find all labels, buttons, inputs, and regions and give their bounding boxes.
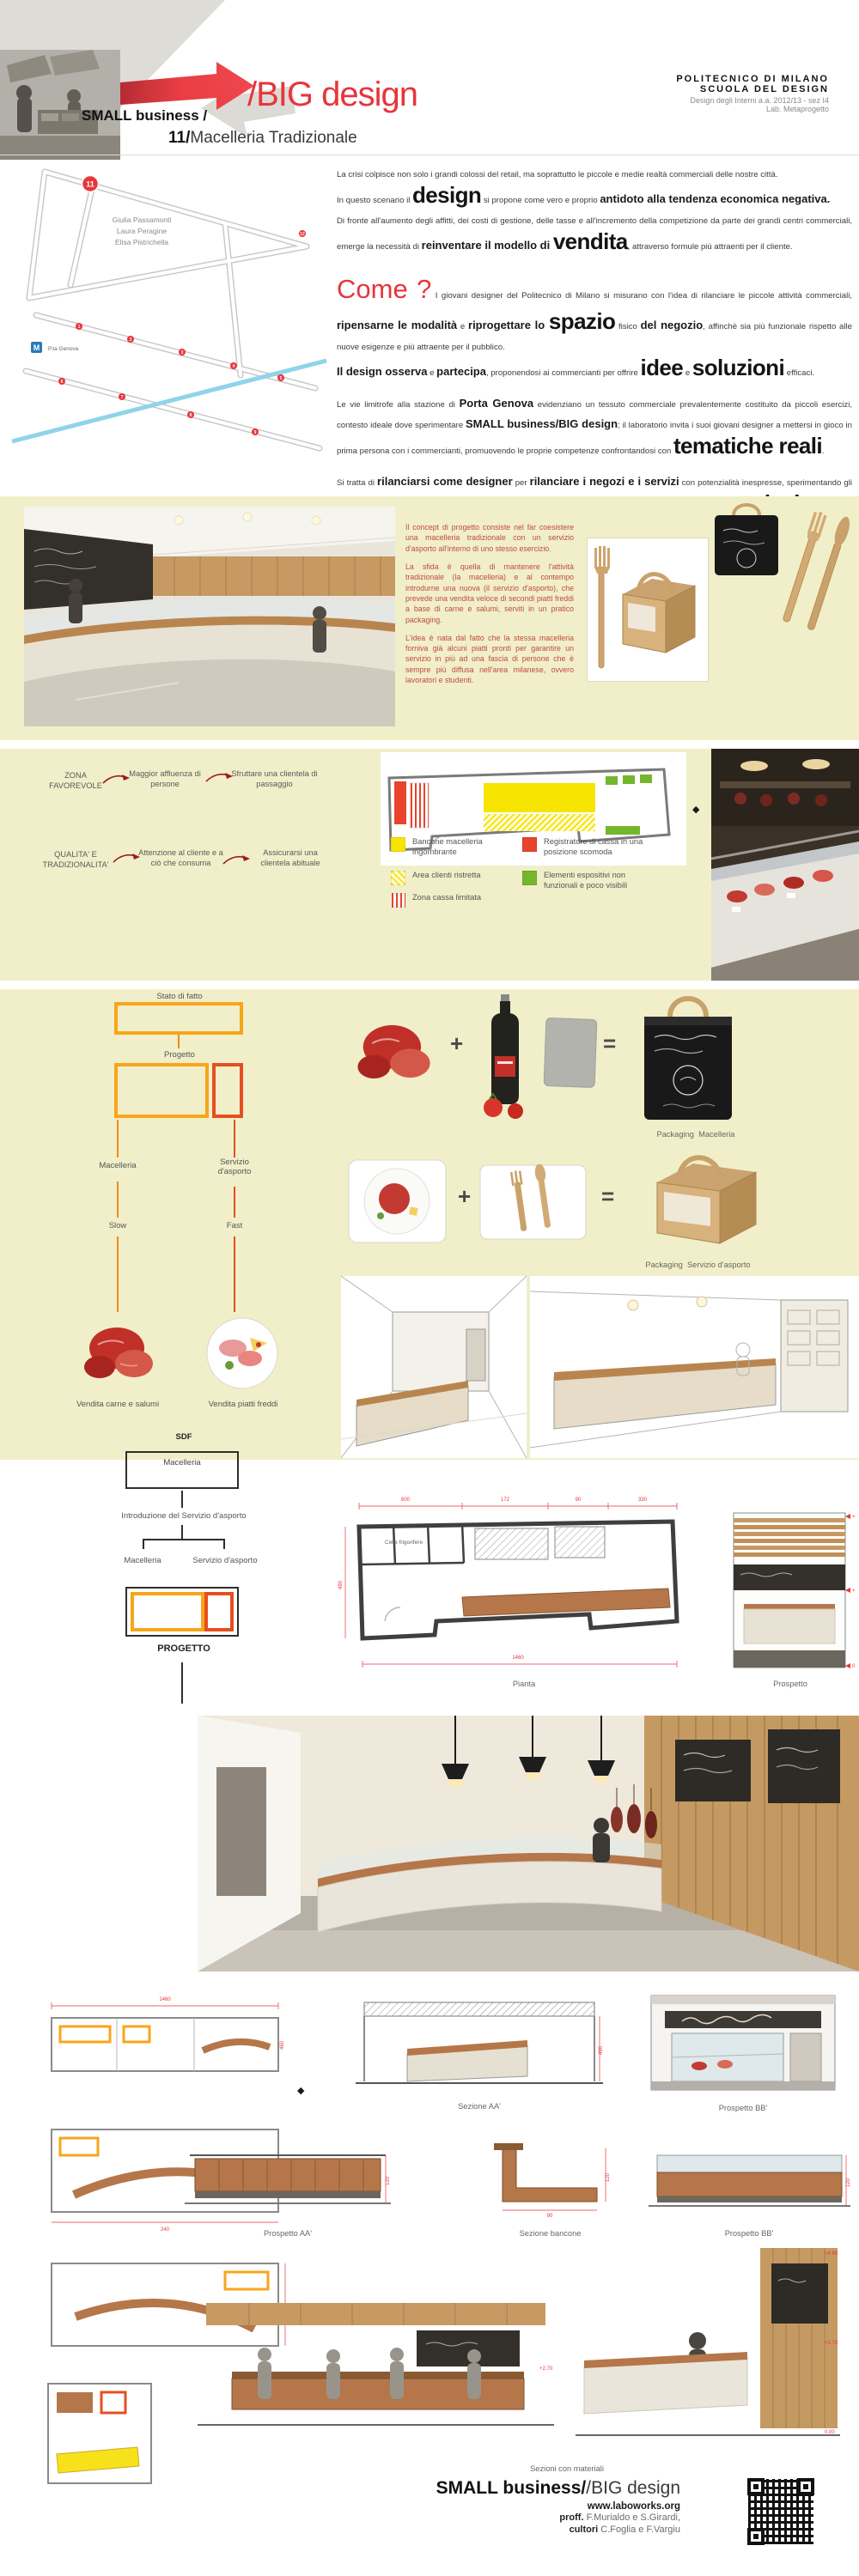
connector xyxy=(178,1035,180,1048)
svg-text:172: 172 xyxy=(501,1498,510,1503)
brand-big: /BIG design xyxy=(247,76,417,114)
footer-site: www.laboworks.org xyxy=(344,2501,680,2512)
blackboard-band xyxy=(734,1564,845,1590)
svg-text:M: M xyxy=(34,343,40,352)
concept-text: Il concept di progetto consiste nel far … xyxy=(405,522,574,693)
slow-label: Slow xyxy=(92,1221,143,1230)
flow2-node-a: QUALITA' E TRADIZIONALITA' xyxy=(33,850,119,870)
author: Laura Peragine xyxy=(94,226,189,237)
course-line2: Lab. Metaprogetto xyxy=(567,105,829,113)
prospetto-bb-storefront xyxy=(639,1989,847,2097)
connector xyxy=(117,1182,119,1218)
svg-text:90: 90 xyxy=(576,1498,582,1503)
svg-text:8: 8 xyxy=(190,413,192,418)
svg-text:2: 2 xyxy=(130,337,132,343)
svg-text:6: 6 xyxy=(61,380,64,385)
author: Giulia Passamonti xyxy=(94,215,189,226)
svg-text:600: 600 xyxy=(401,1498,411,1503)
connector xyxy=(143,1539,225,1540)
svg-text:3: 3 xyxy=(181,350,184,355)
state-label: Stato di fatto xyxy=(124,992,235,1001)
svg-text:+4.90: +4.90 xyxy=(825,2251,838,2257)
caption-vendita-carne: Vendita carne e salumi xyxy=(70,1400,165,1409)
connector xyxy=(117,1236,119,1312)
marker-11: 11 xyxy=(82,176,99,192)
canal-line xyxy=(12,361,326,441)
sezioni-materiali-caption: Sezioni con materiali xyxy=(498,2464,636,2473)
project-label: Progetto xyxy=(124,1050,235,1060)
prospetto-drawing: +4.90 +2.20 0.00 xyxy=(727,1504,856,1676)
prospetto-caption: Prospetto xyxy=(747,1680,833,1688)
sdf-branch-right: Servizio d'asporto xyxy=(186,1556,265,1565)
prospetto-aa-drawing: 120 xyxy=(185,2133,391,2219)
svg-text:120: 120 xyxy=(386,2176,391,2185)
flow1-node-b: Maggior affluenza di persone xyxy=(126,769,204,789)
svg-text:0.00: 0.00 xyxy=(825,2430,835,2435)
doorway xyxy=(216,1767,266,1896)
person-silhouette xyxy=(593,1818,610,1862)
svg-text:1460: 1460 xyxy=(512,1656,524,1661)
connector xyxy=(234,1187,235,1218)
project-render-1 xyxy=(341,1276,527,1458)
connector xyxy=(223,1539,225,1549)
brand-small: SMALL business / xyxy=(82,107,207,125)
concept-paragraph: La sfida è quella di mantenere l'attivit… xyxy=(405,562,574,625)
flow1-node-c: Sfruttare una clientela di passaggio xyxy=(225,769,324,789)
svg-text:9: 9 xyxy=(254,430,257,435)
qr-finder xyxy=(747,2478,765,2495)
intro-text: La crisi colpisce non solo i grandi colo… xyxy=(337,163,852,550)
header-divider xyxy=(0,155,859,155)
svg-text:460: 460 xyxy=(280,2040,285,2050)
svg-text:7: 7 xyxy=(121,395,124,400)
project-rect-macelleria xyxy=(114,1063,209,1118)
cold-plate-figure xyxy=(200,1315,284,1391)
celle-label: Celle frigorifere xyxy=(385,1540,423,1546)
qr-finder xyxy=(797,2478,814,2495)
menu-blackboard xyxy=(675,1740,751,1801)
svg-text:11: 11 xyxy=(86,180,94,189)
project-title-line: 11/Macelleria Tradizionale xyxy=(168,129,357,148)
sezione-bancone-drawing: 90 120 xyxy=(477,2133,623,2219)
flow1-node-a: ZONA FAVOREVOLE xyxy=(41,771,110,791)
footer-cultori: cultori C.Foglia e F.Vargiu xyxy=(344,2524,680,2536)
black-bag-figure xyxy=(710,496,783,579)
flow2-node-b: Attenzione al cliente e a ciò che consum… xyxy=(136,848,226,868)
project-number: 11/ xyxy=(168,129,190,147)
legend-item: Zona cassa limitata xyxy=(391,893,481,908)
concept-paragraph: Il concept di progetto consiste nel far … xyxy=(405,522,574,554)
legend-swatch-red-stripe xyxy=(391,893,405,908)
course-line1: Design degli Interni a.a. 2012/13 - sez … xyxy=(567,96,829,105)
legend-swatch-yellow xyxy=(391,837,405,852)
svg-text:12: 12 xyxy=(300,232,305,237)
branch-macelleria: Macelleria xyxy=(75,1161,161,1170)
plus-glyph: + xyxy=(458,1183,471,1210)
sdf-orange-rect xyxy=(131,1592,204,1631)
svg-text:330: 330 xyxy=(638,1498,648,1503)
diamond-marker: ◆ xyxy=(297,2085,304,2096)
packaging-caption-2: Packaging Servizio d'asporto xyxy=(627,1261,769,1269)
shop-sign xyxy=(665,2011,821,2028)
connector xyxy=(234,1120,235,1157)
tartare-plate-figure xyxy=(348,1159,447,1243)
intro-paragraph: La crisi colpisce non solo i grandi colo… xyxy=(337,163,852,256)
prospetto-bb-caption: Prospetto BB' xyxy=(691,2104,795,2112)
material-section-1: +2.70 xyxy=(198,2281,554,2452)
wood-wall xyxy=(153,556,395,596)
svg-text:90: 90 xyxy=(547,2214,553,2219)
registratore xyxy=(394,781,406,824)
project-rect-asporto xyxy=(212,1063,243,1118)
project-render-2 xyxy=(530,1276,859,1458)
person-silhouette xyxy=(313,606,326,653)
raw-meat-figure xyxy=(77,1315,159,1391)
footer-professors: proff. F.Murialdo e S.Girardi, xyxy=(344,2512,680,2524)
sezione-aa-caption: Sezione AA' xyxy=(428,2102,531,2111)
sezione-bancone-caption: Sezione bancone xyxy=(497,2229,604,2238)
footer-credits: SMALL business//BIG design www.laboworks… xyxy=(344,2478,680,2537)
caption-vendita-piatti: Vendita piatti freddi xyxy=(196,1400,290,1409)
sdf-red-rect xyxy=(204,1592,234,1631)
svg-text:1460: 1460 xyxy=(159,1997,171,2002)
school-line2: SCUOLA DEL DESIGN xyxy=(567,84,829,94)
market-photo xyxy=(0,50,120,160)
svg-text:5: 5 xyxy=(280,376,283,381)
legend-item: Area clienti ristretta xyxy=(391,871,481,885)
plus-glyph: + xyxy=(450,1030,463,1057)
svg-text:120: 120 xyxy=(606,2172,611,2182)
fork-and-box-figure xyxy=(587,538,707,680)
material-section-2: +4.90 +2.70 0.00 xyxy=(567,2238,849,2454)
connector xyxy=(234,1236,235,1312)
interior-render-photo xyxy=(24,507,395,726)
bancone xyxy=(484,783,595,812)
legend-item: Registratore di cassa in una posizione s… xyxy=(522,837,673,857)
project-title: Macelleria Tradizionale xyxy=(190,129,356,147)
prospetto-aa-caption: Prospetto AA' xyxy=(236,2229,339,2238)
map-streets xyxy=(26,172,320,448)
author: Elisa Pistrichella xyxy=(94,237,189,248)
concept-paragraph: L'idea è nata dal fatto che la stessa ma… xyxy=(405,633,574,686)
legend-item: Elementi espositivi non funzionali e poc… xyxy=(522,871,647,890)
state-rect xyxy=(114,1002,243,1035)
wooden-cutlery-figure xyxy=(775,508,857,637)
station-label: P.ta Genova xyxy=(48,346,79,352)
connector xyxy=(181,1491,183,1508)
connector xyxy=(143,1539,144,1549)
raw-meat-figure xyxy=(350,1012,436,1093)
zona-cassa xyxy=(410,783,429,828)
wine-and-tomatoes-figure xyxy=(478,986,538,1121)
black-bag-figure xyxy=(637,981,739,1125)
sdf-branch-left: Macelleria xyxy=(100,1556,186,1565)
pianta-caption: Pianta xyxy=(481,1680,567,1688)
sdf-progetto-label: PROGETTO xyxy=(132,1643,235,1655)
prospetto-bb2-caption: Prospetto BB' xyxy=(698,2229,801,2238)
svg-text:+2.70: +2.70 xyxy=(825,2341,838,2346)
svg-text:490: 490 xyxy=(599,2045,603,2055)
area-clienti xyxy=(484,814,595,831)
qr-code xyxy=(746,2476,816,2547)
svg-text:+4.90: +4.90 xyxy=(852,1515,856,1520)
svg-text:1: 1 xyxy=(78,325,81,330)
qr-finder xyxy=(747,2528,765,2545)
flow-arrow xyxy=(112,848,141,867)
diamond-marker: ◆ xyxy=(692,804,699,815)
flow-arrow xyxy=(101,769,131,788)
slate-board-figure xyxy=(544,1018,598,1088)
flow-arrow xyxy=(204,768,234,787)
intro-paragraph: Le vie limitrofe alla stazione di Porta … xyxy=(337,393,852,460)
sezione-aa-drawing: 490 xyxy=(356,1994,603,2095)
main-perspective-render xyxy=(198,1716,859,1971)
svg-text:0.00: 0.00 xyxy=(852,1664,856,1669)
svg-text:120: 120 xyxy=(846,2178,850,2187)
legend-swatch-red xyxy=(522,837,537,852)
authors-block: Giulia Passamonti Laura Peragine Elisa P… xyxy=(94,215,189,249)
sdf-step: Introduzione del Servizio d'asporto xyxy=(81,1511,287,1521)
level-marks: +4.90 +2.20 0.00 xyxy=(845,1514,856,1669)
equals-glyph: = xyxy=(601,1183,614,1210)
poster-board: SMALL business / /BIG design 11/Maceller… xyxy=(0,0,859,2576)
pianta-drawing: 600 172 90 330 Celle frigorifere 1460 49… xyxy=(333,1492,703,1676)
wooden-fork-icon xyxy=(594,546,610,668)
butcher-shop-photo xyxy=(711,749,859,981)
svg-text:+2.70: +2.70 xyxy=(539,2366,553,2372)
sdf-box-macelleria: Macelleria xyxy=(125,1451,239,1489)
branch-asporto: Servizio d'asporto xyxy=(204,1157,265,1177)
connector xyxy=(181,1662,183,1704)
neighborhood-map: 1 2 3 4 5 6 7 8 9 12 11 M P.ta Genova xyxy=(10,156,330,467)
plan-variant-1: 1460 460 xyxy=(40,1994,290,2095)
legend-swatch-yellow-hatch xyxy=(391,871,405,885)
legend-swatch-green xyxy=(522,871,537,885)
school-line1: POLITECNICO DI MILANO xyxy=(567,74,829,84)
svg-text:240: 240 xyxy=(161,2227,170,2233)
intro-paragraph: Come ? I giovani designer del Politecnic… xyxy=(337,270,852,382)
equals-glyph: = xyxy=(603,1030,616,1057)
legend-item: Bancone macelleria ingombrante xyxy=(391,837,515,857)
sdf-label: SDF xyxy=(141,1432,227,1442)
connector xyxy=(181,1525,183,1539)
prospetto-bb2-drawing: 120 xyxy=(649,2133,850,2219)
kraft-box-figure xyxy=(631,1135,765,1255)
kraft-box-icon xyxy=(623,574,695,653)
svg-text:+2.20: +2.20 xyxy=(852,1589,856,1594)
school-block: POLITECNICO DI MILANO SCUOLA DEL DESIGN … xyxy=(567,74,829,113)
plan-variant-4 xyxy=(40,2375,160,2492)
person-silhouette xyxy=(69,579,82,623)
fast-label: Fast xyxy=(209,1221,260,1230)
footer-brand: SMALL business//BIG design xyxy=(344,2478,680,2499)
connector xyxy=(117,1120,119,1157)
svg-text:4: 4 xyxy=(233,364,235,369)
svg-text:490: 490 xyxy=(338,1580,344,1589)
flow-arrow xyxy=(222,850,251,869)
metro-station-marker: M P.ta Genova xyxy=(31,342,79,353)
flow2-node-c: Assicurarsi una clientela abituale xyxy=(247,848,333,868)
wooden-cutlery-panel xyxy=(479,1164,587,1240)
